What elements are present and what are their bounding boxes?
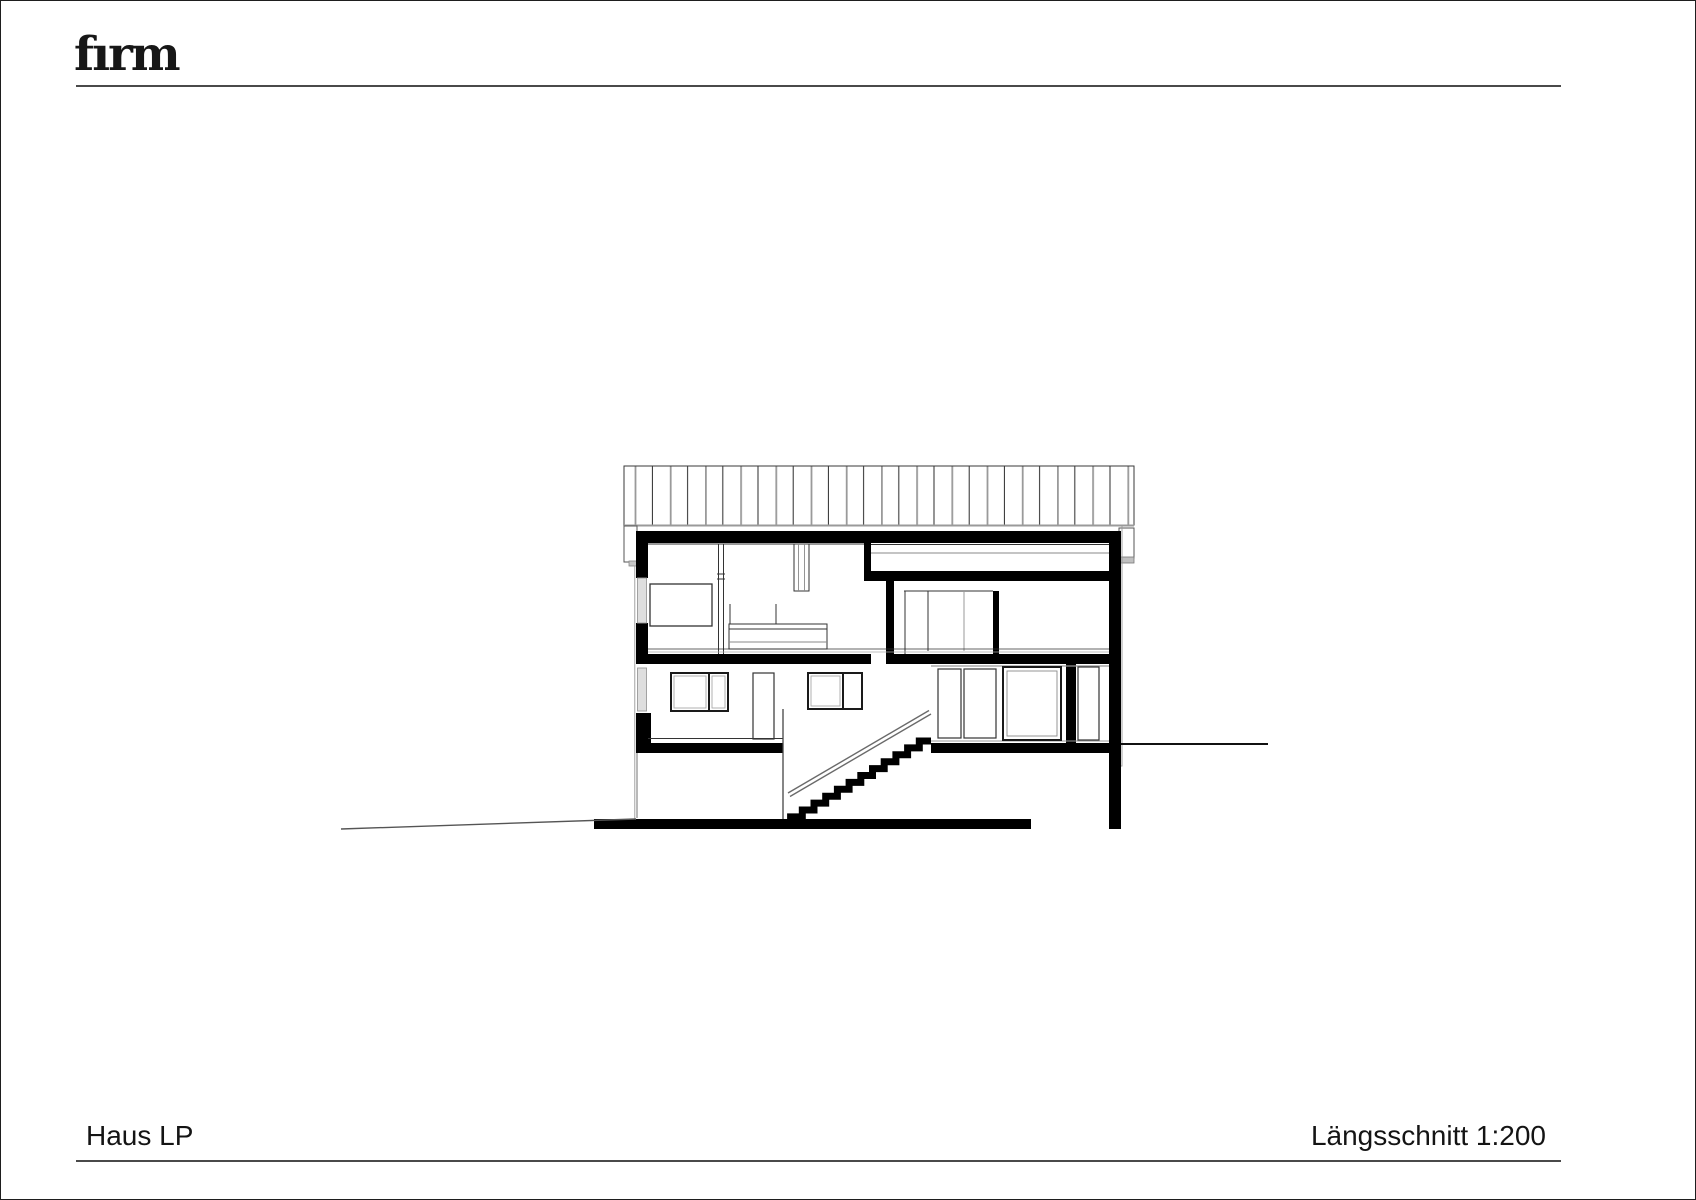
partition-wall [717,544,725,654]
furniture-cabinet [650,584,712,626]
stair-area [637,709,931,822]
lower-floor-slab-right [931,743,1121,753]
grade-line-left [341,819,636,829]
left-wall-mid [636,623,648,655]
lower-floor-slab-left [636,743,783,753]
interior-partition [993,591,999,654]
footer-rule [76,1160,1561,1162]
bedroom-door-frames [904,591,993,654]
dropped-ceiling-slab [871,571,1109,581]
roof-eave-left [624,526,637,566]
roof [624,466,1134,566]
drawing-label: Längsschnitt 1:200 [1311,1119,1546,1153]
floor-slab-right [886,654,1121,664]
ceiling-slab [636,531,1119,543]
project-title: Haus LP [86,1119,193,1153]
plan-sheet: fırm [0,0,1696,1200]
interior-wall [886,581,894,664]
furniture-sideboard [729,604,827,649]
window-mullion [1066,664,1076,743]
floor-slab-left [636,654,871,664]
stair-steps [791,741,931,822]
glazed-wall [931,666,1109,741]
upper-floor-interior [648,544,1109,654]
window-2 [808,673,862,709]
dropped-ceiling-cap [864,543,871,581]
left-wall-upper [636,531,648,578]
ceiling-duct [794,544,809,591]
door-1 [753,673,774,739]
window-1 [671,673,728,711]
right-wall [1109,531,1121,829]
roof-eave-right [1119,528,1134,563]
basement-slab [594,819,1031,829]
section-drawing [1,1,1696,1200]
lower-floor-openings [671,666,1109,741]
